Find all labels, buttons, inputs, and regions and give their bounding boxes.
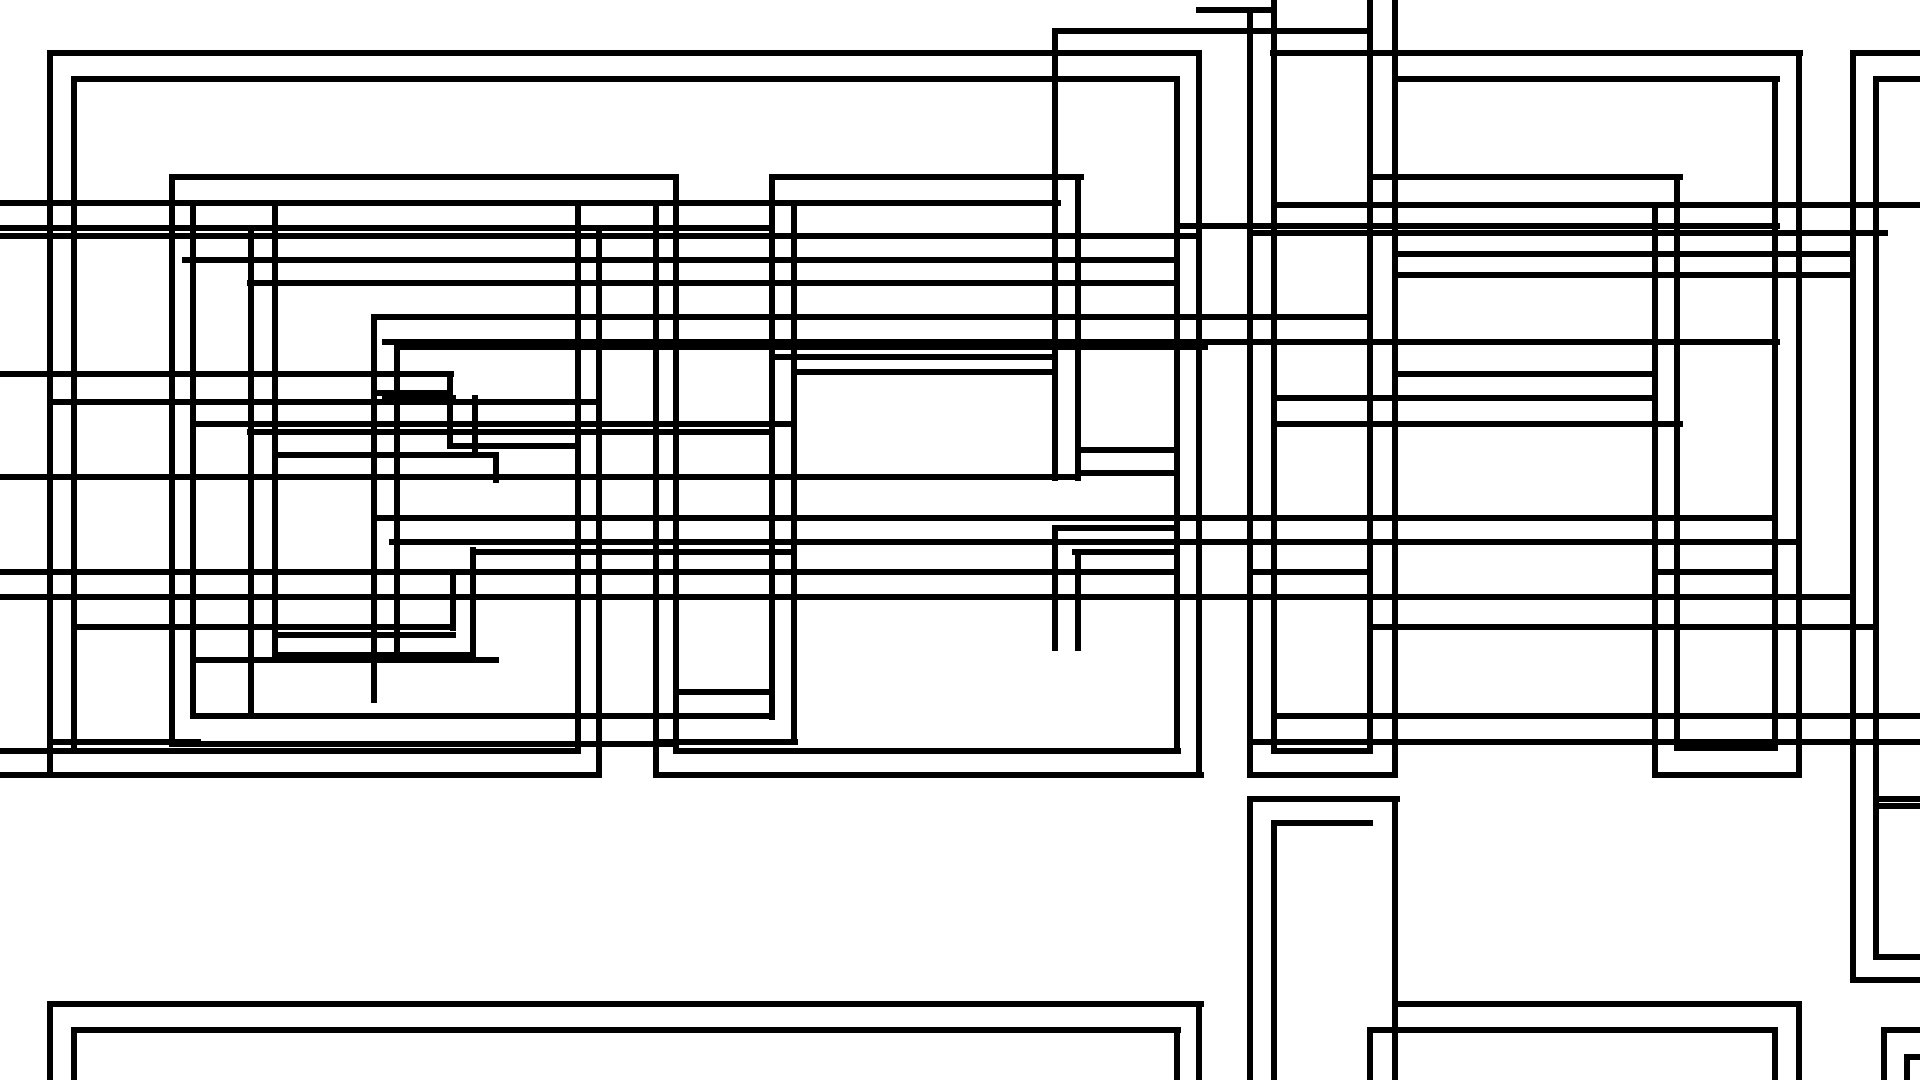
v-line-segment xyxy=(673,174,679,754)
line-art-canvas xyxy=(0,0,1920,1080)
v-line-segment xyxy=(1850,50,1856,983)
v-line-segment xyxy=(1652,202,1658,778)
h-line-segment xyxy=(1392,251,1854,257)
h-line-segment xyxy=(47,399,597,405)
h-line-segment xyxy=(1392,371,1658,377)
h-line-segment xyxy=(1271,820,1373,826)
h-line-segment xyxy=(371,314,1373,320)
v-line-segment xyxy=(1796,1001,1802,1080)
v-line-segment xyxy=(1674,174,1680,751)
h-line-segment xyxy=(190,657,499,663)
h-line-segment xyxy=(1174,223,1780,229)
v-line-segment xyxy=(575,200,581,754)
v-line-segment xyxy=(1904,1054,1910,1080)
h-line-segment xyxy=(247,429,775,435)
v-line-segment xyxy=(1174,76,1180,754)
v-line-segment xyxy=(653,200,659,778)
h-line-segment xyxy=(1270,50,1803,56)
v-line-segment xyxy=(1196,50,1202,778)
h-line-segment xyxy=(247,280,1180,286)
h-line-segment xyxy=(1850,50,1920,56)
h-line-segment xyxy=(1052,525,1180,531)
h-line-segment xyxy=(1055,28,1373,34)
h-line-segment xyxy=(1394,1001,1802,1007)
v-line-segment xyxy=(169,174,175,747)
h-line-segment xyxy=(1271,748,1373,754)
v-line-segment xyxy=(1772,76,1778,751)
v-line-segment xyxy=(1796,50,1802,778)
v-line-segment xyxy=(190,200,196,719)
h-line-segment xyxy=(47,1001,1204,1007)
v-line-segment xyxy=(447,371,453,449)
h-line-segment xyxy=(1247,772,1398,778)
h-line-segment xyxy=(0,569,1180,575)
h-line-segment xyxy=(0,772,602,778)
h-line-segment xyxy=(0,748,581,754)
v-line-segment xyxy=(1772,1027,1778,1080)
h-line-segment xyxy=(1075,470,1180,476)
h-line-segment xyxy=(1392,272,1854,278)
v-line-segment xyxy=(1052,28,1058,481)
v-line-segment xyxy=(394,339,400,658)
v-line-segment xyxy=(1873,76,1879,960)
v-line-segment xyxy=(1075,550,1081,651)
h-line-segment xyxy=(1392,76,1780,82)
v-line-segment xyxy=(1367,0,1373,754)
h-line-segment xyxy=(1247,796,1400,802)
h-line-segment xyxy=(769,354,1058,360)
v-line-segment xyxy=(1367,1027,1373,1080)
h-line-segment xyxy=(1247,230,1888,236)
v-line-segment xyxy=(1392,796,1398,1080)
h-line-segment xyxy=(1652,772,1802,778)
h-line-segment xyxy=(372,515,1778,521)
h-line-segment xyxy=(1367,1027,1778,1033)
v-line-segment xyxy=(371,314,377,703)
v-line-segment xyxy=(1196,1001,1202,1080)
v-line-segment xyxy=(47,50,53,778)
v-line-segment xyxy=(1247,7,1253,778)
h-line-segment xyxy=(1873,954,1920,960)
v-line-segment xyxy=(493,452,499,483)
v-line-segment xyxy=(1075,174,1081,481)
v-line-segment xyxy=(470,547,476,658)
v-line-segment xyxy=(47,1001,53,1080)
v-line-segment xyxy=(791,200,797,745)
v-line-segment xyxy=(450,569,456,631)
h-line-segment xyxy=(1873,803,1920,809)
v-line-segment xyxy=(1271,0,1277,754)
v-line-segment xyxy=(1271,820,1277,1080)
h-line-segment xyxy=(1075,447,1180,453)
h-line-segment xyxy=(190,713,775,719)
v-line-segment xyxy=(71,1027,77,1080)
v-line-segment xyxy=(596,225,602,778)
h-line-segment xyxy=(1196,7,1277,13)
h-line-segment xyxy=(470,549,797,555)
h-line-segment xyxy=(447,443,581,449)
h-line-segment xyxy=(673,748,1181,754)
h-line-segment xyxy=(1873,796,1920,802)
h-line-segment xyxy=(71,76,1180,82)
v-line-segment xyxy=(272,200,278,658)
h-line-segment xyxy=(769,174,1084,180)
h-line-segment xyxy=(1850,977,1920,983)
h-line-segment xyxy=(1271,421,1683,427)
v-line-segment xyxy=(1247,796,1253,1080)
h-line-segment xyxy=(1873,76,1920,82)
v-line-segment xyxy=(1174,1027,1180,1080)
h-line-segment xyxy=(0,371,454,377)
h-line-segment xyxy=(394,344,1208,350)
h-line-segment xyxy=(1652,569,1778,575)
h-line-segment xyxy=(272,452,499,458)
h-line-segment xyxy=(1247,569,1373,575)
v-line-segment xyxy=(472,395,478,458)
h-line-segment xyxy=(1247,739,1920,745)
h-line-segment xyxy=(71,1027,1181,1033)
v-line-segment xyxy=(248,225,254,719)
h-line-segment xyxy=(0,200,1061,206)
h-line-segment xyxy=(1367,174,1683,180)
h-line-segment xyxy=(47,50,1202,56)
h-line-segment xyxy=(272,632,456,638)
h-line-segment xyxy=(791,369,1058,375)
h-line-segment xyxy=(1271,395,1658,401)
v-line-segment xyxy=(1392,0,1398,778)
v-line-segment xyxy=(769,174,775,720)
v-line-segment xyxy=(1881,1027,1887,1080)
h-line-segment xyxy=(169,741,679,747)
h-line-segment xyxy=(0,474,1081,480)
v-line-segment xyxy=(71,76,77,754)
h-line-segment xyxy=(182,257,1180,263)
h-line-segment xyxy=(1674,745,1778,751)
h-line-segment xyxy=(673,689,775,695)
h-line-segment xyxy=(169,174,679,180)
h-line-segment xyxy=(1367,624,1879,630)
h-line-segment xyxy=(1072,549,1180,555)
h-line-segment xyxy=(0,594,1856,600)
v-line-segment xyxy=(1052,525,1058,651)
h-line-segment xyxy=(196,421,797,427)
h-line-segment xyxy=(653,772,1204,778)
